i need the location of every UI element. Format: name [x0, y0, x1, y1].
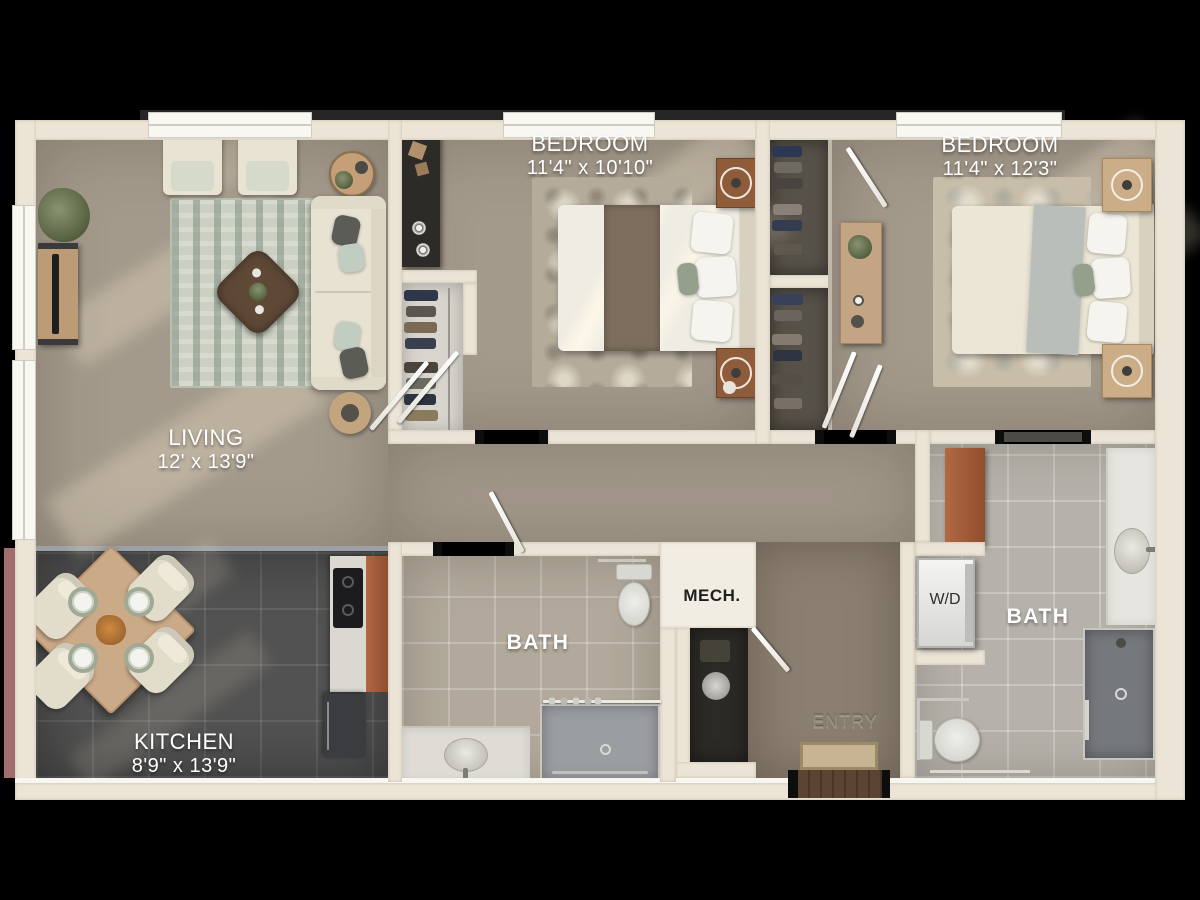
- fridge-handle: [327, 702, 329, 750]
- entry-front-door: [798, 770, 882, 798]
- bath2-shower: [1083, 628, 1155, 760]
- grab-bar: [598, 559, 646, 562]
- sofa-pillow: [338, 346, 370, 381]
- door-jamb: [475, 430, 484, 444]
- shower-drain: [1115, 688, 1127, 700]
- bed-pillow: [1086, 300, 1128, 344]
- wall-closet1-stub: [463, 283, 477, 355]
- fan-icon: [1111, 169, 1143, 201]
- bedroom2-headboard: [1140, 203, 1154, 355]
- clothes-item: [774, 398, 802, 409]
- clothes-item: [772, 334, 802, 345]
- bed-pillow: [1086, 212, 1127, 255]
- mech-equipment: [700, 640, 730, 662]
- coffee-table-cup: [250, 267, 263, 280]
- door-jamb: [815, 430, 824, 444]
- wall-closet2-divider: [770, 275, 832, 288]
- bed-accent-pillow: [676, 262, 699, 296]
- bedroom1-bed: [558, 205, 744, 351]
- bath1-label: BATH: [507, 631, 570, 655]
- room-name: LIVING: [158, 425, 255, 451]
- bed-pillow: [695, 256, 738, 299]
- wall-kitchen-bath1: [388, 542, 402, 782]
- bed-accent-pillow: [1072, 263, 1096, 297]
- grab-bar: [917, 698, 969, 701]
- clothes-item: [773, 204, 802, 215]
- dresser-decor-cube: [415, 162, 430, 177]
- wall-mech-bottom: [676, 762, 756, 778]
- room-dims: 12' x 13'9": [158, 451, 255, 475]
- entry-door-mat: [800, 742, 878, 770]
- shower-head: [1116, 638, 1126, 648]
- clothes-item: [774, 244, 802, 255]
- clothes-item: [405, 338, 436, 349]
- wall-bedroom1-bottom: [388, 430, 483, 444]
- door-jamb: [505, 542, 514, 556]
- wall-closet1-divider: [402, 270, 477, 283]
- room-dims: 11'4" x 12'3": [941, 158, 1058, 182]
- bedroom1-dresser: [402, 133, 440, 267]
- side-table-decor: [355, 161, 368, 174]
- window: [12, 205, 36, 350]
- dresser-decor-disc: [416, 243, 430, 257]
- dresser-knob: [853, 295, 864, 306]
- kitchen-label: KITCHEN 8'9" x 13'9": [132, 729, 237, 779]
- room-name: BEDROOM: [941, 132, 1058, 158]
- place-setting: [124, 587, 154, 617]
- mech-label: MECH.: [683, 586, 740, 606]
- clothes-item: [772, 178, 803, 189]
- wall-entry-right: [900, 542, 915, 778]
- bath2-label: BATH: [1007, 605, 1070, 629]
- wall-mech-left: [676, 628, 690, 768]
- place-setting: [124, 643, 154, 673]
- exterior-wall-bottom: [15, 778, 1185, 800]
- bath1-toilet-bowl: [618, 582, 650, 626]
- bedroom2-closet-clothes: [772, 146, 812, 270]
- dresser-decor-cube: [408, 141, 427, 160]
- bath1-sink: [444, 738, 488, 772]
- closet2-front-edge: [828, 140, 832, 430]
- bath2-sink: [1114, 528, 1150, 574]
- exterior-accent-panel: [4, 548, 15, 778]
- table-centerpiece: [96, 615, 126, 645]
- tv-screen: [52, 254, 59, 334]
- door-jamb: [433, 542, 442, 556]
- accent-chair: [163, 133, 222, 195]
- window: [12, 360, 36, 540]
- bath2-pocket-door: [1003, 432, 1082, 442]
- coffee-table-plant: [245, 279, 270, 304]
- accent-chair: [238, 133, 297, 195]
- wall-laundry-top: [915, 542, 985, 556]
- kitchen-cabinet-accent: [366, 556, 388, 692]
- laundry-label: W/D: [929, 591, 960, 609]
- side-table-plant: [335, 171, 353, 189]
- dresser-plant: [848, 235, 872, 259]
- bed-pillow: [1091, 257, 1132, 300]
- bed-pillow: [690, 299, 733, 342]
- grab-bar: [917, 698, 920, 760]
- dresser-knob: [851, 315, 864, 328]
- shower-drain: [600, 744, 611, 755]
- shower-curtain: [546, 694, 602, 708]
- bath2-toilet-tank: [918, 720, 933, 760]
- place-setting: [68, 587, 98, 617]
- living-potted-plant: [38, 188, 90, 242]
- room-dims: 11'4" x 10'10": [527, 157, 653, 181]
- living-side-table: [329, 151, 375, 197]
- burner: [342, 604, 354, 616]
- bath1-vanity: [402, 726, 530, 782]
- towel-bar: [930, 770, 1030, 773]
- door-jamb: [788, 770, 798, 798]
- clothes-item: [773, 350, 802, 361]
- wall-bedroom1-bottom: [548, 430, 770, 444]
- bedroom2-nightstand: [1102, 158, 1152, 212]
- door-jamb: [1082, 430, 1091, 444]
- clothes-item: [772, 220, 802, 231]
- bed-pillow: [690, 211, 734, 255]
- door-jamb: [539, 430, 548, 444]
- sofa: [311, 196, 386, 390]
- shower-door-hardware: [1085, 700, 1089, 740]
- sofa-armrest: [311, 196, 386, 209]
- floor-plan: LIVING 12' x 13'9" KITCHEN 8'9" x 13'9" …: [0, 0, 1200, 900]
- bath2-vanity: [1106, 448, 1155, 625]
- place-setting: [68, 643, 98, 673]
- chair-cushion: [171, 161, 214, 191]
- room-name: KITCHEN: [132, 729, 237, 755]
- window: [148, 112, 312, 138]
- sofa-seat-divider: [315, 291, 371, 293]
- bath1-shower: [540, 704, 660, 782]
- bath1-toilet-tank: [616, 564, 652, 580]
- bath2-toilet-bowl: [934, 718, 980, 762]
- clothes-item: [404, 322, 437, 333]
- room-dims: 8'9" x 13'9": [132, 755, 237, 779]
- wall-bath2-top: [1082, 430, 1155, 444]
- door-jamb: [887, 430, 896, 444]
- clothes-item: [404, 290, 438, 301]
- bedroom2-label: BEDROOM 11'4" x 12'3": [941, 132, 1058, 182]
- clothes-item: [772, 294, 803, 305]
- clothes-item: [772, 374, 803, 385]
- room-name: BEDROOM: [527, 131, 653, 157]
- exterior-wall-right: [1155, 120, 1185, 800]
- sofa-pillow: [337, 242, 366, 273]
- wall-bath2-top: [930, 430, 1003, 444]
- wall-bath1-right: [660, 628, 676, 782]
- burner: [342, 576, 354, 588]
- door-jamb: [995, 430, 1004, 444]
- bedroom2-closet-clothes: [772, 294, 812, 424]
- entry-label: ENTRY: [812, 712, 878, 733]
- wall-laundry-bottom: [915, 650, 985, 665]
- mech-wall-block: [660, 542, 756, 628]
- fan-icon: [720, 167, 752, 199]
- shower-ledge: [552, 771, 648, 774]
- kitchen-counter: [330, 556, 366, 692]
- living-room-label: LIVING 12' x 13'9": [158, 425, 255, 475]
- wd-door-edge: [965, 564, 973, 642]
- kitchen-floor-transition: [36, 546, 388, 551]
- wall-bath2-left-upper: [915, 430, 930, 542]
- sofa-backrest: [371, 196, 386, 390]
- chair-cushion: [246, 161, 289, 191]
- bath2-linen-cabinet-accent: [945, 448, 985, 546]
- clothes-item: [774, 162, 802, 173]
- cooktop: [333, 568, 363, 628]
- bedroom2-nightstand: [1102, 344, 1152, 398]
- wall-bath1-top: [505, 542, 660, 556]
- wall-bedroom1-right: [755, 120, 770, 444]
- refrigerator: [324, 694, 366, 758]
- ottoman-center: [341, 404, 359, 422]
- clothes-item: [772, 146, 802, 157]
- bedroom2-dresser: [840, 222, 882, 344]
- clothes-item: [774, 310, 802, 321]
- bedroom1-nightstand: [716, 158, 756, 208]
- clothes-item: [406, 306, 436, 317]
- bed-runner: [604, 205, 660, 351]
- fan-icon: [1111, 355, 1143, 387]
- water-heater: [702, 672, 730, 700]
- tv-console: [38, 243, 78, 345]
- nightstand-vase: [723, 381, 736, 394]
- bedroom1-headboard: [740, 200, 755, 354]
- bedroom1-label: BEDROOM 11'4" x 10'10": [527, 131, 653, 181]
- wall-bedroom1-left: [388, 120, 402, 430]
- coffee-table-cup: [253, 303, 266, 316]
- hallway-floor: [388, 444, 915, 542]
- ottoman: [329, 392, 371, 434]
- bedroom1-nightstand: [716, 348, 756, 398]
- bedroom2-bed: [952, 206, 1144, 354]
- dresser-decor-disc: [412, 221, 426, 235]
